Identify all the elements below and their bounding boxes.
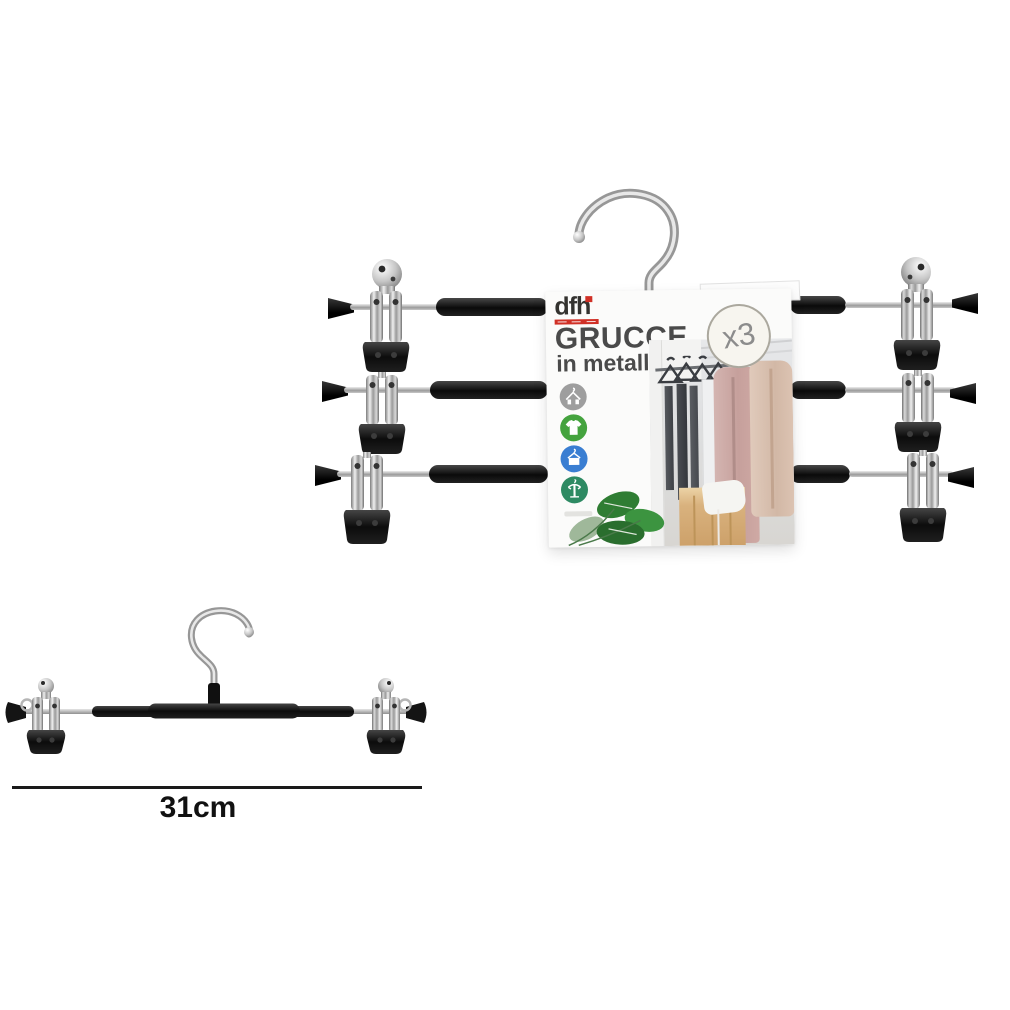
photo-hanger-stack <box>690 386 700 496</box>
tshirt-icon <box>560 414 587 441</box>
bar-black-sleeve <box>790 381 846 399</box>
bar-black-sleeve <box>436 298 548 316</box>
hanger-clip <box>362 258 410 372</box>
hanger-garment-icon <box>560 445 587 472</box>
brand-logo-mark <box>585 296 592 302</box>
hanger-with-clips-icon <box>560 383 587 410</box>
product-photo-scene: dfh GRUCCE in metallo <box>0 0 1010 1010</box>
bar-end-cap <box>948 467 974 488</box>
photo-hanger-stack <box>665 386 674 490</box>
hanger-clip <box>893 256 941 370</box>
card-subtitle: in metallo <box>556 349 664 377</box>
photo-white-cloth <box>701 479 746 516</box>
hanger-clip <box>367 678 411 754</box>
bar-black-sleeve <box>429 465 548 483</box>
hanger-clip <box>22 678 66 754</box>
bar-black-sleeve <box>790 465 850 483</box>
lifestyle-photo <box>649 338 795 546</box>
bar-black-sleeve <box>430 381 548 399</box>
dimension-label: 31cm <box>38 791 358 825</box>
photo-hanger-stack <box>677 384 689 500</box>
product-card: dfh GRUCCE in metallo <box>545 288 795 547</box>
hanger-clip <box>358 372 406 454</box>
photo-beige-coat <box>749 360 794 517</box>
single-hanger-diagram <box>0 588 450 788</box>
hanger-clip <box>342 452 392 544</box>
hanger-clip <box>898 450 948 542</box>
bar-end-cap <box>950 383 976 404</box>
dimension-line <box>12 786 422 789</box>
hanger-clip <box>894 370 942 452</box>
plant-leaves <box>548 486 669 548</box>
bar-end-cap <box>952 293 978 314</box>
